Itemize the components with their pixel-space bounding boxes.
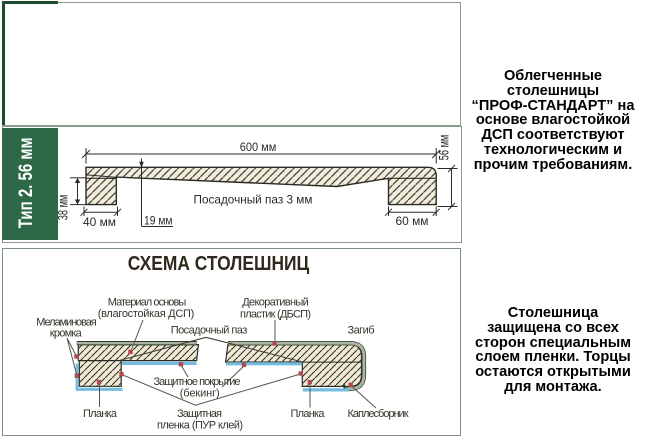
svg-text:Загиб: Загиб [348, 325, 375, 337]
svg-text:Защитная: Защитная [177, 408, 222, 420]
svg-text:19 мм: 19 мм [144, 214, 173, 228]
svg-text:пленка (ПУР клей): пленка (ПУР клей) [157, 420, 243, 432]
svg-text:Планка: Планка [291, 408, 326, 420]
svg-text:Каплесборник: Каплесборник [348, 408, 409, 420]
svg-text:кромка: кромка [50, 328, 83, 340]
svg-text:60 мм: 60 мм [396, 214, 429, 228]
svg-text:Планка: Планка [83, 408, 118, 420]
svg-text:(бекинг): (бекинг) [180, 388, 220, 400]
svg-text:Декоративный: Декоративный [242, 297, 309, 309]
svg-text:40 мм: 40 мм [83, 215, 116, 229]
svg-text:(влагостойкая ДСП): (влагостойкая ДСП) [98, 308, 195, 320]
svg-text:Посадочный паз: Посадочный паз [171, 325, 248, 337]
svg-text:Материал основы: Материал основы [108, 297, 187, 309]
svg-text:56 мм: 56 мм [437, 135, 452, 161]
svg-text:38 мм: 38 мм [56, 195, 71, 221]
svg-text:пластик (ДБСП): пластик (ДБСП) [240, 309, 311, 321]
svg-text:Посадочный паз 3 мм: Посадочный паз 3 мм [194, 193, 313, 207]
svg-text:Защитное покрытие: Защитное покрытие [154, 376, 241, 388]
svg-text:600 мм: 600 мм [240, 140, 277, 154]
